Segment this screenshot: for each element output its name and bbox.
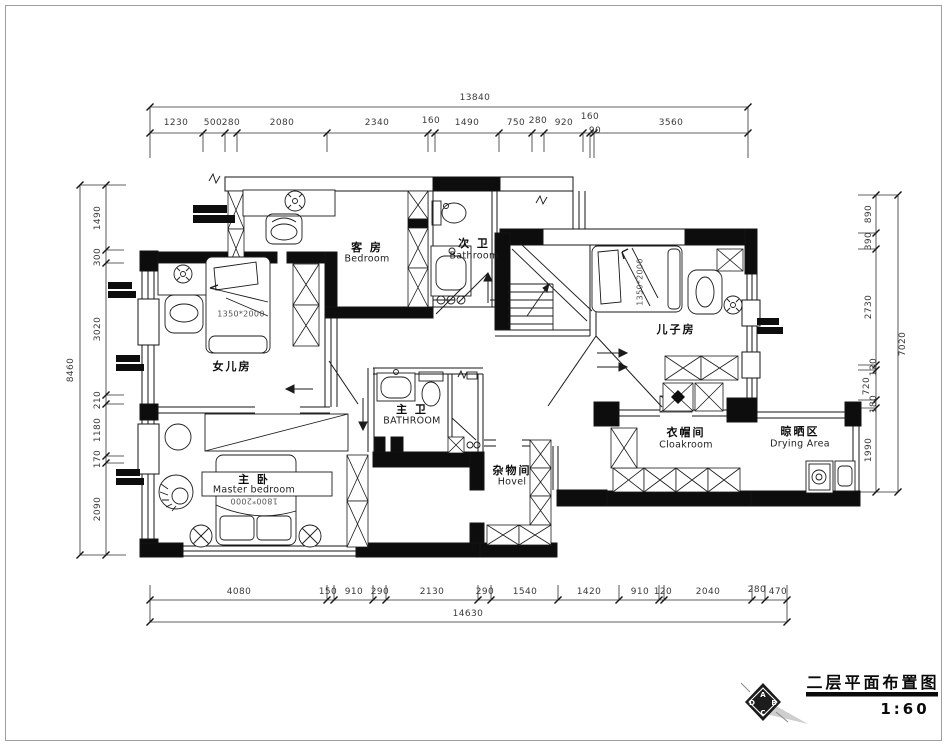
- dim-label: 290: [371, 587, 389, 597]
- room-label-guest-en: Bedroom: [344, 254, 389, 265]
- dim-label: 2130: [420, 587, 445, 597]
- dim-label: 2080: [270, 118, 295, 128]
- dim-label: 4080: [227, 587, 252, 597]
- floor-plan-drawing: A D B C: [0, 0, 947, 746]
- dim-label: 90: [589, 126, 601, 136]
- dim-label: 470: [769, 587, 787, 597]
- room-label-cloak-en: Cloakroom: [659, 440, 713, 451]
- dim-label: 290: [476, 587, 494, 597]
- room-label-master-en: Master bedroom: [213, 485, 295, 496]
- drawing-title: 二层平面布置图: [806, 669, 939, 693]
- dim-label: 280: [748, 585, 766, 595]
- dim-total-bottom: 14630: [453, 609, 484, 619]
- dim-label: 2340: [365, 118, 390, 128]
- dim-label: 210: [93, 391, 103, 409]
- dim-label: 3020: [93, 317, 103, 342]
- logo-letter-left: D: [749, 699, 755, 707]
- dim-total-top: 13840: [460, 93, 491, 103]
- dim-label: 280: [222, 118, 240, 128]
- logo-letter-right: B: [771, 699, 776, 707]
- dim-label: 170: [93, 450, 103, 468]
- room-label-drying-en: Drying Area: [770, 439, 830, 450]
- dim-label: 910: [631, 587, 649, 597]
- dim-label: 150: [319, 587, 337, 597]
- dim-label: 720: [862, 377, 872, 395]
- room-label-cloak-cn: 衣帽间: [667, 424, 706, 440]
- room-label-drying-cn: 晾晒区: [781, 423, 820, 439]
- bed-size-son: 1350*2000: [636, 258, 645, 305]
- dim-total-left: 8460: [66, 358, 76, 383]
- dim-label: 750: [507, 118, 525, 128]
- dim-label: 120: [869, 358, 879, 376]
- room-label-hovel-en: Hovel: [498, 477, 527, 488]
- dim-label: 180: [869, 395, 879, 413]
- dim-label: 1420: [577, 587, 602, 597]
- bed-size-daughter: 1350*2000: [217, 310, 264, 319]
- drawing-scale: 1:60: [880, 700, 929, 718]
- dim-label: 300: [93, 248, 103, 266]
- dim-label: 1180: [93, 418, 103, 443]
- room-label-bath2-en: Bathroom: [449, 251, 498, 262]
- dim-label: 120: [654, 587, 672, 597]
- room-label-daughter: 女儿房: [213, 358, 252, 374]
- room-label-mbath-en: BATHROOM: [383, 416, 440, 427]
- dim-label: 910: [345, 587, 363, 597]
- dim-label: 280: [529, 116, 547, 126]
- floor-plan-page: A D B C 13840 1230 500 280 2080 2340 160…: [0, 0, 947, 746]
- dim-label: 1490: [455, 118, 480, 128]
- dim-total-right: 7020: [898, 332, 908, 357]
- dim-label: 160: [581, 112, 599, 122]
- dim-label: 920: [555, 118, 573, 128]
- dim-label: 2730: [864, 295, 874, 320]
- dim-label: 160: [422, 116, 440, 126]
- dim-label: 390: [864, 232, 874, 250]
- logo-letter-bottom: C: [760, 709, 765, 717]
- dim-label: 2040: [696, 587, 721, 597]
- dim-label: 1990: [864, 438, 874, 463]
- logo-letter-top: A: [760, 691, 766, 699]
- room-label-bath2-cn: 次 卫: [458, 235, 490, 251]
- dim-label: 3560: [659, 118, 684, 128]
- dim-label: 500: [204, 118, 222, 128]
- dim-label: 890: [864, 205, 874, 223]
- room-label-son: 儿子房: [657, 321, 696, 337]
- bed-size-master: 1800*2000: [230, 497, 277, 506]
- dim-label: 1490: [93, 206, 103, 231]
- dim-label: 1540: [513, 587, 538, 597]
- dim-label: 1230: [164, 118, 189, 128]
- dim-label: 2090: [93, 497, 103, 522]
